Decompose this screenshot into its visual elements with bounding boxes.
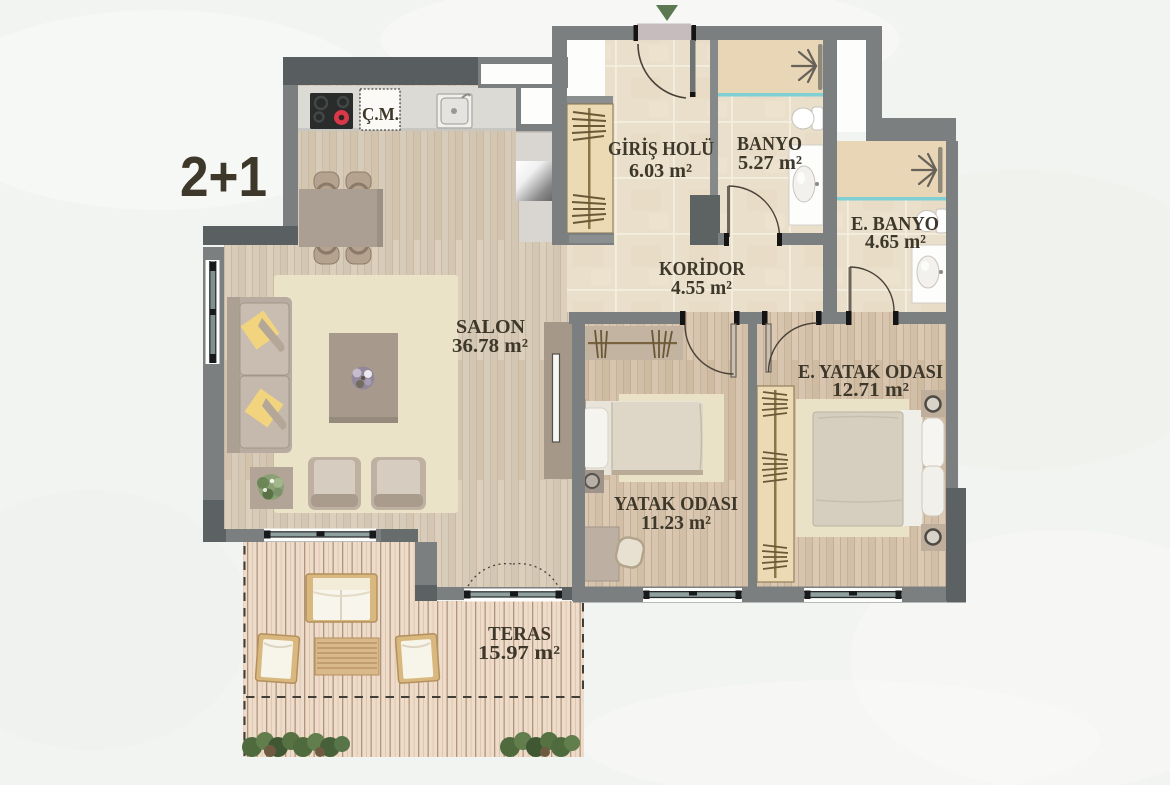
svg-text:5.27 m²: 5.27 m² — [738, 152, 802, 174]
svg-text:15.97 m²: 15.97 m² — [478, 642, 560, 664]
svg-text:6.03 m²: 6.03 m² — [629, 160, 692, 182]
svg-text:GİRİŞ HOLÜ: GİRİŞ HOLÜ — [608, 136, 714, 160]
svg-text:4.55 m²: 4.55 m² — [671, 277, 732, 299]
svg-text:2+1: 2+1 — [180, 145, 267, 209]
svg-text:4.65 m²: 4.65 m² — [865, 231, 926, 253]
svg-text:Ç.M.: Ç.M. — [362, 104, 399, 124]
svg-text:12.71 m²: 12.71 m² — [832, 379, 909, 401]
svg-text:11.23 m²: 11.23 m² — [641, 512, 711, 534]
svg-text:36.78 m²: 36.78 m² — [452, 335, 528, 357]
